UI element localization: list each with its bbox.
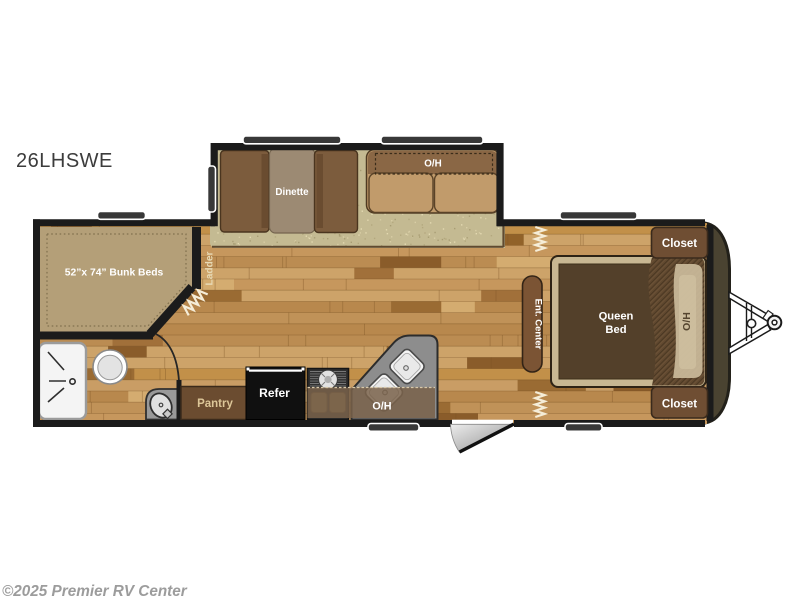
- svg-text:©2025 Premier RV Center: ©2025 Premier RV Center: [2, 583, 188, 600]
- svg-text:Queen: Queen: [599, 311, 634, 323]
- svg-text:O/H: O/H: [424, 159, 441, 170]
- svg-text:Pantry: Pantry: [197, 398, 233, 410]
- svg-text:Closet: Closet: [662, 238, 697, 250]
- svg-text:Dinette: Dinette: [275, 187, 309, 198]
- svg-text:Refer: Refer: [259, 386, 290, 400]
- svg-text:26LHSWE: 26LHSWE: [16, 150, 113, 172]
- svg-text:Closet: Closet: [662, 399, 697, 411]
- svg-text:Ent. Center: Ent. Center: [533, 299, 544, 350]
- svg-text:Ladder: Ladder: [205, 251, 216, 285]
- svg-text:Bed: Bed: [605, 324, 626, 336]
- svg-text:O/H: O/H: [681, 312, 693, 331]
- svg-text:O/H: O/H: [372, 401, 391, 413]
- svg-text:52”x 74” Bunk Beds: 52”x 74” Bunk Beds: [65, 268, 164, 279]
